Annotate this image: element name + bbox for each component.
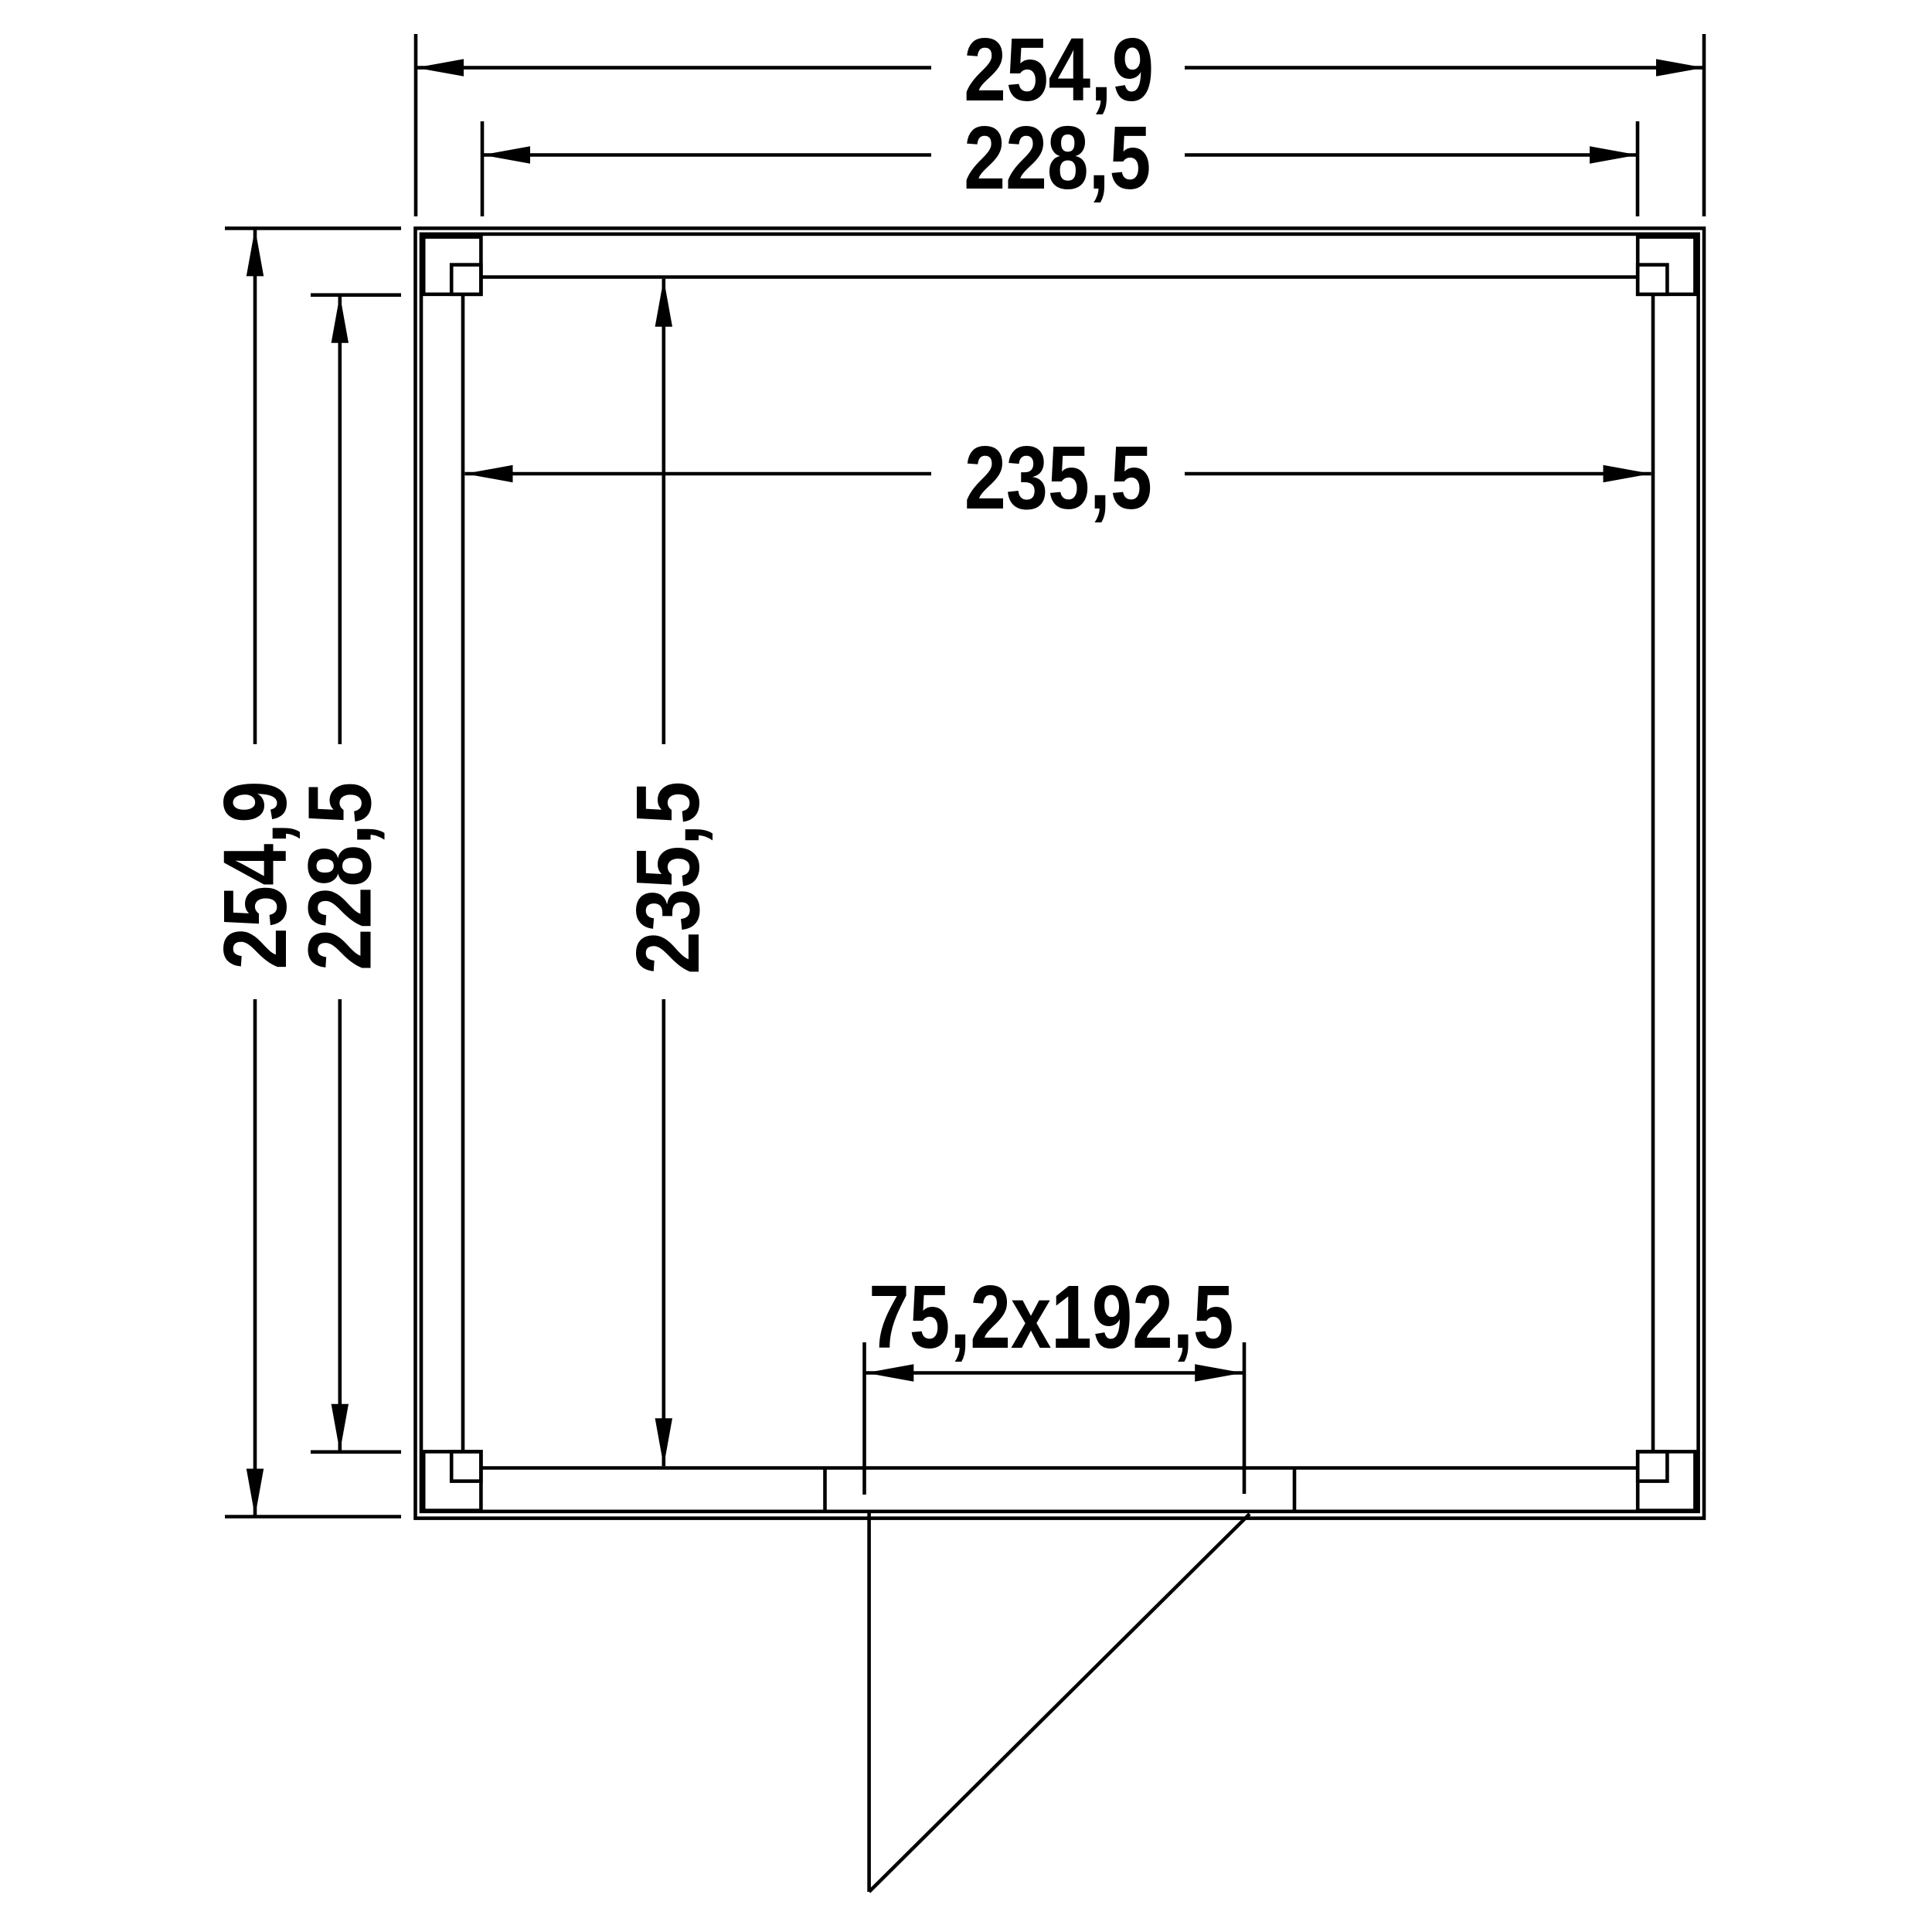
svg-text:228,5: 228,5 <box>964 107 1151 208</box>
svg-text:235,5: 235,5 <box>964 427 1152 528</box>
svg-text:75,2x192,5: 75,2x192,5 <box>869 1267 1233 1367</box>
svg-text:235,5: 235,5 <box>617 781 718 975</box>
svg-text:254,9: 254,9 <box>964 19 1154 120</box>
svg-text:228,5: 228,5 <box>290 782 390 971</box>
